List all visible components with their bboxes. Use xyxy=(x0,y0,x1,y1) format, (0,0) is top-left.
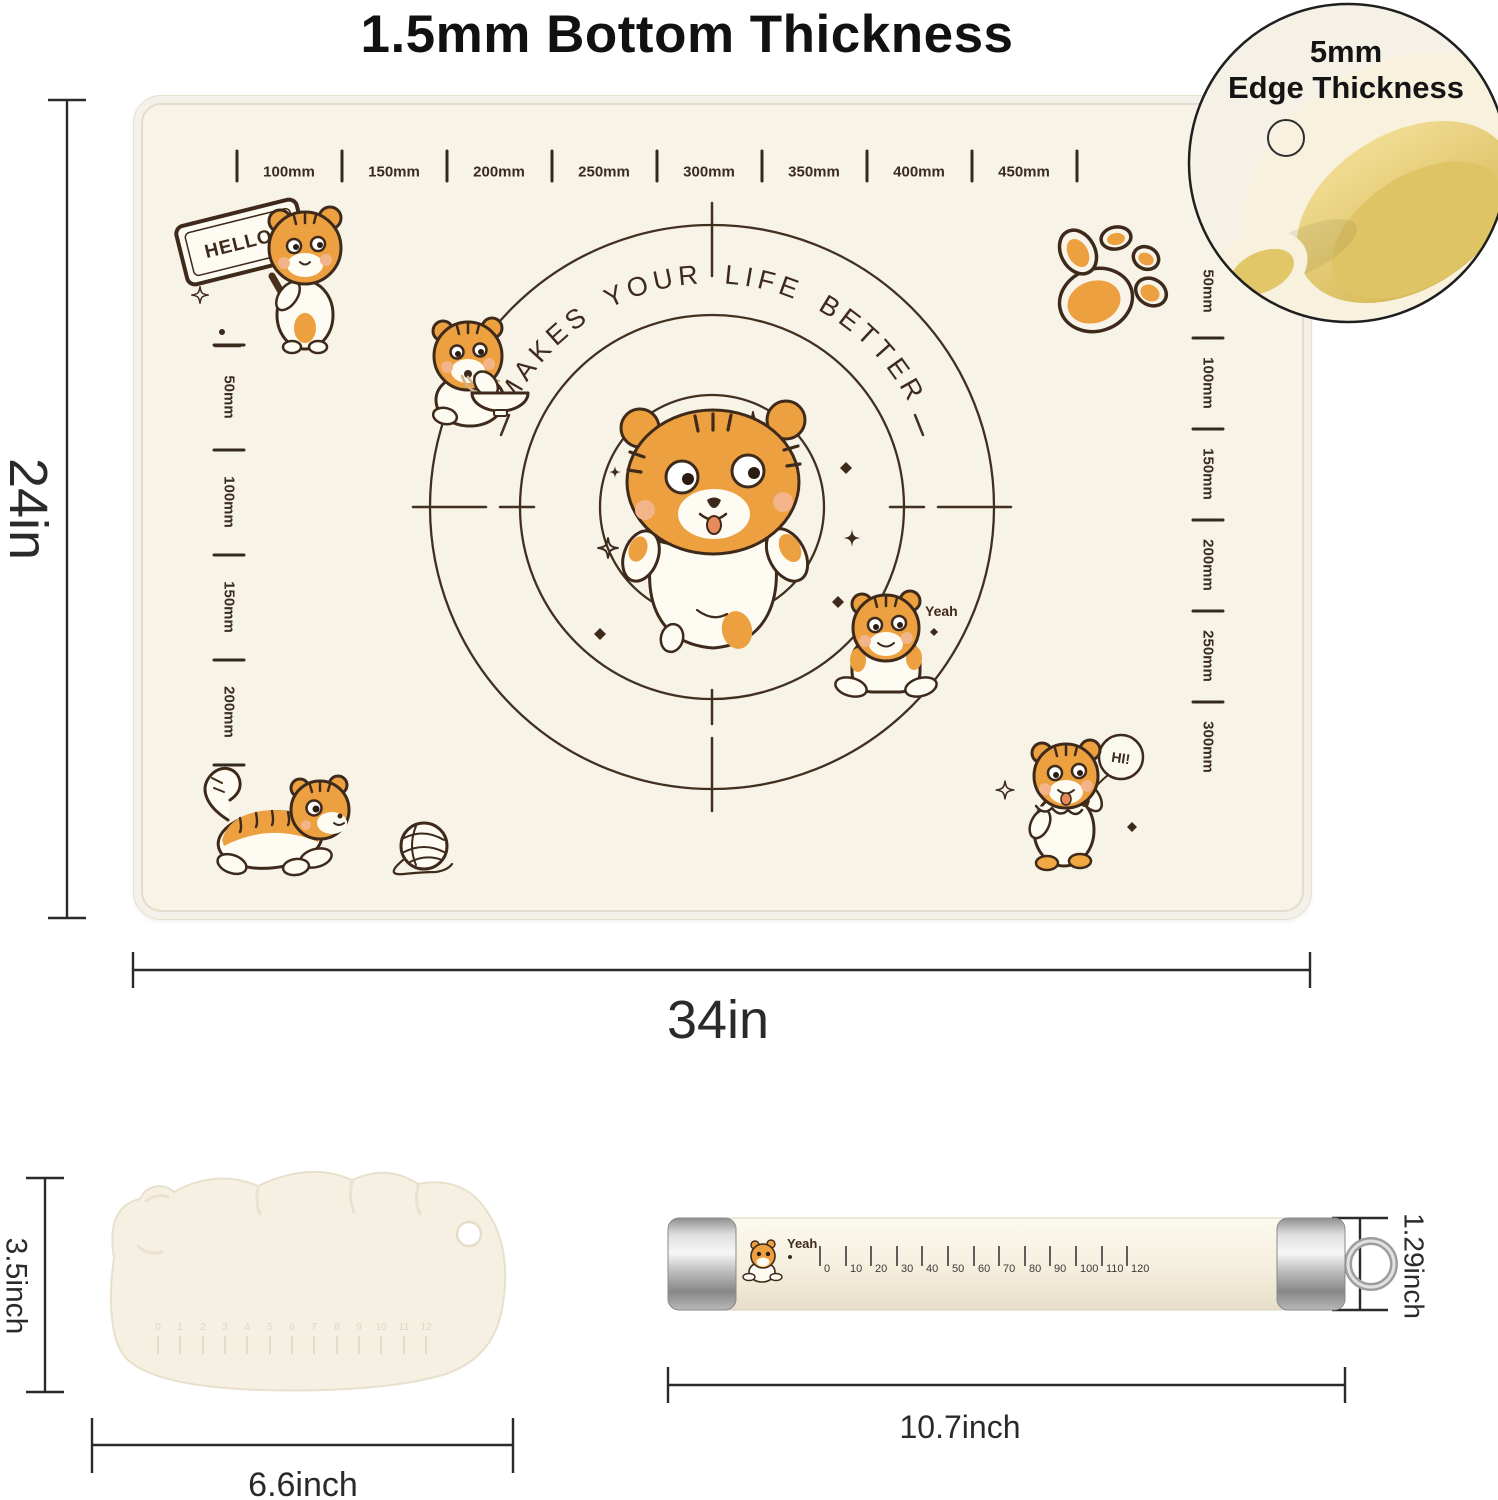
ruler-label: 150mm xyxy=(368,164,420,181)
ruler-label: 450mm xyxy=(998,164,1050,181)
slogan-arc: MAKES YOUR LIFE BETTER xyxy=(492,259,932,409)
ruler-label: 200mm xyxy=(473,164,525,181)
pin-metal-cap-right xyxy=(1277,1218,1345,1310)
svg-text:0: 0 xyxy=(824,1263,830,1275)
svg-text:12: 12 xyxy=(420,1322,432,1333)
svg-text:7: 7 xyxy=(311,1322,317,1333)
mat-height-dimension: 24in xyxy=(0,458,58,560)
left-ruler: 50mm 100mm 150mm 200mm xyxy=(214,345,244,765)
svg-text:11: 11 xyxy=(399,1322,410,1333)
svg-text:0: 0 xyxy=(155,1322,161,1333)
ruler-label: 200mm xyxy=(221,686,238,738)
scraper-width-dimension: 6.6inch xyxy=(248,1466,358,1500)
svg-text:8: 8 xyxy=(334,1322,340,1333)
tiger-hi-illustration: HI! xyxy=(996,735,1143,870)
svg-text:40: 40 xyxy=(926,1263,938,1275)
tiger-yeah-illustration: Yeah xyxy=(833,591,957,700)
svg-text:80: 80 xyxy=(1029,1263,1041,1275)
pin-yeah-label: Yeah xyxy=(787,1236,817,1251)
ruler-label: 150mm xyxy=(221,581,238,633)
inset-thickness-label: Edge Thickness xyxy=(1228,70,1464,105)
svg-text:110: 110 xyxy=(1106,1263,1124,1275)
svg-text:9: 9 xyxy=(356,1322,362,1333)
ruler-label: 50mm xyxy=(1200,269,1217,312)
scraper-height-dimension: 3.5inch xyxy=(0,1238,33,1335)
scraper-illustration: 0 1 2 3 4 5 6 7 8 9 10 11 12 xyxy=(111,1172,505,1391)
svg-text:5: 5 xyxy=(267,1322,273,1333)
pin-length-dimension: 10.7inch xyxy=(900,1409,1021,1445)
svg-text:120: 120 xyxy=(1131,1263,1149,1275)
ruler-label: 50mm xyxy=(221,375,238,418)
top-ruler: 100mm 150mm 200mm 250mm 300mm 350mm 400m… xyxy=(237,151,1077,181)
ruler-label: 200mm xyxy=(1200,539,1217,591)
ruler-label: 250mm xyxy=(578,164,630,181)
svg-text:10: 10 xyxy=(850,1263,862,1275)
ruler-label: 100mm xyxy=(1200,357,1217,409)
svg-text:20: 20 xyxy=(875,1263,887,1275)
svg-text:10: 10 xyxy=(375,1322,387,1333)
paw-print-illustration xyxy=(1051,224,1171,341)
center-tiger-illustration xyxy=(594,401,861,654)
svg-text:30: 30 xyxy=(901,1263,913,1275)
inset-thickness-value: 5mm xyxy=(1310,34,1382,69)
ruler-label: 350mm xyxy=(788,164,840,181)
edge-thickness-inset: 5mm Edge Thickness xyxy=(1189,0,1498,383)
ruler-label: 300mm xyxy=(1200,721,1217,773)
tiger-hello-illustration: HELLO! xyxy=(175,198,341,353)
product-infographic: 1.5mm Bottom Thickness xyxy=(0,0,1498,1500)
pin-metal-cap-left xyxy=(668,1218,736,1310)
ruler-label: 300mm xyxy=(683,164,735,181)
svg-text:90: 90 xyxy=(1054,1263,1066,1275)
svg-text:70: 70 xyxy=(1003,1263,1015,1275)
artwork-layer: 100mm 150mm 200mm 250mm 300mm 350mm 400m… xyxy=(0,0,1498,1500)
rolling-pin-illustration: Yeah 0 10 20 30 40 50 60 70 80 90 100 11… xyxy=(668,1218,1394,1310)
svg-text:60: 60 xyxy=(978,1263,990,1275)
svg-text:4: 4 xyxy=(244,1322,250,1333)
tiger-running-illustration xyxy=(205,768,452,877)
ruler-label: 100mm xyxy=(221,476,238,528)
svg-text:100: 100 xyxy=(1080,1263,1098,1275)
hi-label: HI! xyxy=(1111,749,1132,767)
svg-text:1: 1 xyxy=(177,1322,183,1333)
mat-width-dimension: 34in xyxy=(667,990,769,1050)
ruler-label: 150mm xyxy=(1200,448,1217,500)
svg-text:2: 2 xyxy=(200,1322,206,1333)
ruler-label: 250mm xyxy=(1200,630,1217,682)
svg-text:6: 6 xyxy=(289,1322,295,1333)
right-ruler: 50mm 100mm 150mm 200mm 250mm 300mm xyxy=(1193,269,1223,773)
yeah-label: Yeah xyxy=(925,603,958,619)
pin-diameter-dimension: 1.29inch xyxy=(1399,1213,1430,1319)
ruler-label: 400mm xyxy=(893,164,945,181)
mat-decoration: 100mm 150mm 200mm 250mm 300mm 350mm 400m… xyxy=(175,151,1223,878)
ruler-label: 100mm xyxy=(263,164,315,181)
yarn-ball-illustration xyxy=(394,823,452,874)
svg-text:50: 50 xyxy=(952,1263,964,1275)
svg-text:3: 3 xyxy=(222,1322,228,1333)
